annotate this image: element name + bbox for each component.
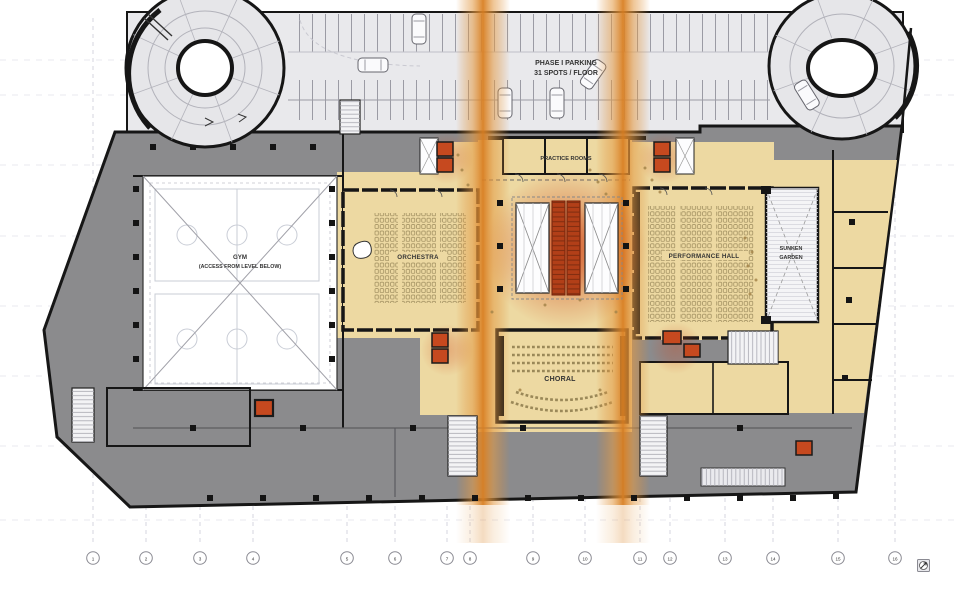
column bbox=[631, 495, 637, 501]
column bbox=[525, 495, 531, 501]
column bbox=[497, 286, 503, 292]
column bbox=[623, 243, 629, 249]
speck bbox=[597, 181, 600, 184]
stair bbox=[72, 388, 94, 442]
grid-bubble-number: 6 bbox=[394, 556, 397, 561]
floor-plan-canvas: PHASE I PARKING 31 SPOTS / FLOOR GYM (AC… bbox=[0, 0, 960, 595]
column bbox=[329, 186, 335, 192]
stair bbox=[340, 100, 360, 134]
column bbox=[133, 254, 139, 260]
sunken-garden-label: SUNKEN bbox=[780, 246, 803, 252]
shaft bbox=[676, 138, 694, 174]
grid-bubble-number: 15 bbox=[835, 556, 841, 561]
elevator bbox=[432, 349, 448, 363]
column bbox=[329, 322, 335, 328]
column bbox=[329, 288, 335, 294]
elevator bbox=[437, 158, 453, 172]
speck bbox=[744, 237, 747, 240]
elevator bbox=[796, 441, 812, 455]
sunken-garden-label: GARDEN bbox=[779, 255, 802, 261]
column bbox=[790, 495, 796, 501]
speck bbox=[651, 179, 654, 182]
column bbox=[419, 495, 425, 501]
speck bbox=[755, 279, 758, 282]
gym-label: GYM bbox=[233, 254, 247, 261]
column bbox=[270, 144, 276, 150]
elevator bbox=[432, 333, 448, 347]
grid-bubble-number: 5 bbox=[346, 556, 349, 561]
escalator bbox=[516, 203, 549, 293]
column bbox=[520, 425, 526, 431]
circulation-core bbox=[512, 197, 622, 299]
column bbox=[133, 322, 139, 328]
column bbox=[133, 220, 139, 226]
grid-bubble-number: 1 bbox=[92, 556, 95, 561]
practice-rooms-label: PRACTICE ROOMS bbox=[540, 156, 592, 162]
speck bbox=[579, 299, 582, 302]
north-arrow-icon bbox=[918, 560, 930, 572]
column bbox=[623, 200, 629, 206]
choral-label: CHORAL bbox=[544, 376, 576, 383]
grid-bubble-number: 11 bbox=[638, 556, 643, 561]
column bbox=[842, 375, 848, 381]
gym-label: (ACCESS FROM LEVEL BELOW) bbox=[199, 264, 282, 270]
parking-ramp-left bbox=[126, 0, 284, 147]
elevator bbox=[654, 158, 670, 172]
grand-piano bbox=[353, 241, 371, 258]
grid-bubbles: 12345678910111213141516 bbox=[87, 552, 902, 565]
speck bbox=[467, 184, 470, 187]
column bbox=[310, 144, 316, 150]
car bbox=[358, 58, 388, 72]
performance-hall bbox=[634, 188, 772, 338]
column bbox=[497, 200, 503, 206]
column bbox=[329, 254, 335, 260]
elevator bbox=[437, 142, 453, 156]
column bbox=[366, 495, 372, 501]
speck bbox=[589, 169, 592, 172]
speck bbox=[747, 265, 750, 268]
speck bbox=[461, 169, 464, 172]
gym-room bbox=[133, 132, 343, 428]
speck bbox=[615, 311, 618, 314]
speck bbox=[457, 154, 460, 157]
speck bbox=[749, 293, 752, 296]
stair bbox=[728, 331, 778, 364]
column bbox=[497, 243, 503, 249]
column bbox=[737, 495, 743, 501]
grid-bubble-number: 10 bbox=[582, 556, 588, 561]
speck bbox=[605, 193, 608, 196]
stair bbox=[640, 416, 667, 476]
column bbox=[578, 495, 584, 501]
column bbox=[133, 288, 139, 294]
car bbox=[550, 88, 564, 118]
column bbox=[329, 220, 335, 226]
grid-bubble-number: 2 bbox=[145, 556, 148, 561]
column bbox=[230, 144, 236, 150]
column bbox=[329, 356, 335, 362]
speck bbox=[599, 389, 602, 392]
grid-bubble-number: 12 bbox=[667, 556, 673, 561]
parking-ramp-right bbox=[769, 0, 917, 139]
column bbox=[260, 495, 266, 501]
column bbox=[737, 425, 743, 431]
grid-bubble-number: 8 bbox=[469, 556, 472, 561]
column bbox=[623, 286, 629, 292]
speck bbox=[491, 311, 494, 314]
column bbox=[300, 425, 306, 431]
grid-bubble-number: 16 bbox=[892, 556, 898, 561]
grid-bubble-number: 13 bbox=[722, 556, 728, 561]
column bbox=[833, 493, 839, 499]
column bbox=[133, 186, 139, 192]
performance-hall-label: PERFORMANCE HALL bbox=[669, 253, 740, 260]
column bbox=[190, 425, 196, 431]
grid-bubble-number: 4 bbox=[252, 556, 255, 561]
column bbox=[150, 144, 156, 150]
column bbox=[684, 495, 690, 501]
speck bbox=[659, 191, 662, 194]
elevator bbox=[654, 142, 670, 156]
escalator bbox=[585, 203, 618, 293]
stair bbox=[448, 416, 477, 476]
column bbox=[410, 425, 416, 431]
grid-bubble-number: 7 bbox=[446, 556, 449, 561]
elevator bbox=[684, 344, 700, 357]
elevator bbox=[255, 400, 273, 416]
speck bbox=[751, 251, 754, 254]
car bbox=[412, 14, 426, 44]
column bbox=[849, 219, 855, 225]
parking-stalls-row bbox=[288, 14, 770, 52]
orchestra-label: ORCHESTRA bbox=[397, 254, 439, 261]
grid-bubble-number: 9 bbox=[532, 556, 535, 561]
parking-label: 31 SPOTS / FLOOR bbox=[534, 70, 598, 77]
column bbox=[472, 495, 478, 501]
speck bbox=[519, 389, 522, 392]
performance-seating bbox=[648, 206, 754, 322]
speck bbox=[544, 304, 547, 307]
column bbox=[133, 356, 139, 362]
column bbox=[207, 495, 213, 501]
speck bbox=[644, 167, 647, 170]
column bbox=[313, 495, 319, 501]
column bbox=[846, 297, 852, 303]
floor-plan-drawing: PHASE I PARKING 31 SPOTS / FLOOR GYM (AC… bbox=[0, 0, 960, 595]
grid-bubble-number: 14 bbox=[770, 556, 776, 561]
parking-label: PHASE I PARKING bbox=[535, 60, 597, 67]
shaft bbox=[420, 138, 438, 174]
grid-bubble-number: 3 bbox=[199, 556, 202, 561]
elevator bbox=[663, 331, 681, 344]
stair bbox=[701, 468, 785, 486]
